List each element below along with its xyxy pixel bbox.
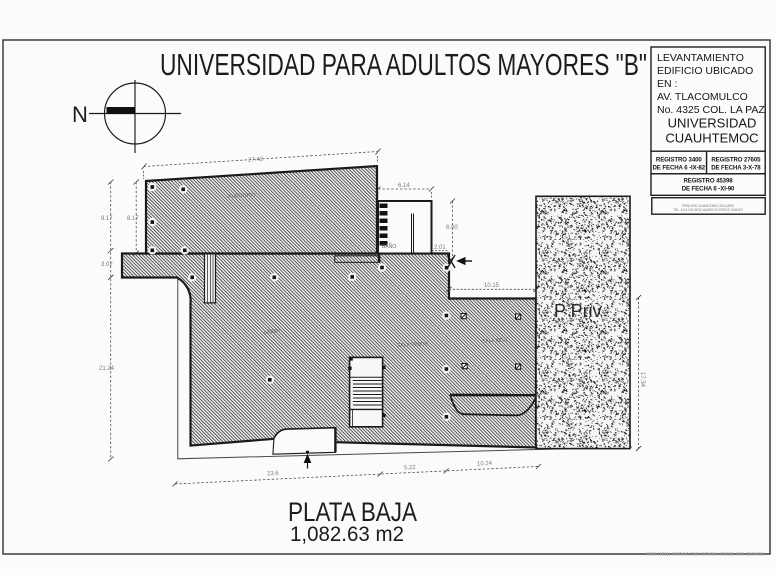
- svg-text:21.24: 21.24: [99, 366, 115, 372]
- svg-text:LOBBY: LOBBY: [264, 329, 282, 336]
- svg-text:8.17: 8.17: [127, 216, 139, 222]
- svg-text:TEL. 5-51-243 ARQ MAURICIO PE: TEL. 5-51-243 ARQ MAURICIO PEREZ JUAREZ: [673, 208, 743, 212]
- svg-text:CUAUHTEMOC: CUAUHTEMOC: [665, 131, 758, 146]
- svg-text:REGISTRO 3400: REGISTRO 3400: [656, 157, 702, 164]
- svg-text:23.6: 23.6: [267, 471, 280, 478]
- svg-text:DE FECHA 3-X-78: DE FECHA 3-X-78: [711, 165, 761, 172]
- svg-text:27.42: 27.42: [248, 157, 264, 164]
- svg-text:10.15: 10.15: [484, 283, 500, 289]
- svg-text:REGISTRO 45398: REGISTRO 45398: [683, 178, 733, 185]
- svg-text:P Priv: P Priv: [554, 301, 602, 321]
- svg-text:mm nmu mmnn mn nmmu mmn nm mmm: mm nmu mmnn mn nmmu mmn nm mmmn: [646, 552, 766, 558]
- svg-text:17.34: 17.34: [639, 372, 645, 388]
- svg-text:BAÑO: BAÑO: [382, 243, 396, 250]
- svg-text:EN :: EN :: [657, 78, 677, 90]
- svg-text:EDIFICIO UBICADO: EDIFICIO UBICADO: [657, 65, 753, 77]
- svg-text:REGISTRO 27605: REGISTRO 27605: [711, 157, 761, 164]
- svg-text:No. 4325 COL. LA PAZ: No. 4325 COL. LA PAZ: [657, 104, 765, 116]
- svg-text:10.24: 10.24: [477, 461, 493, 468]
- svg-text:UNIVERSIDAD PARA ADULTOS MAYOR: UNIVERSIDAD PARA ADULTOS MAYORES "B": [160, 47, 647, 82]
- svg-text:DE FECHA 6 -IX-82: DE FECHA 6 -IX-82: [653, 165, 706, 172]
- svg-text:8.17: 8.17: [101, 216, 113, 222]
- svg-text:LEVANTAMIENTO: LEVANTAMIENTO: [657, 52, 744, 64]
- svg-text:3.02: 3.02: [101, 262, 113, 268]
- svg-text:N: N: [72, 102, 88, 127]
- svg-text:6.00: 6.00: [446, 225, 458, 231]
- svg-text:1,082.63 m2: 1,082.63 m2: [290, 523, 404, 546]
- svg-text:5.22: 5.22: [404, 465, 417, 472]
- svg-text:2.01: 2.01: [434, 245, 446, 251]
- svg-text:DE FECHA 6 -XI-90: DE FECHA 6 -XI-90: [682, 186, 735, 193]
- svg-text:UNIVERSIDAD: UNIVERSIDAD: [668, 116, 757, 131]
- svg-text:AV. TLACOMULCO: AV. TLACOMULCO: [657, 91, 748, 103]
- svg-text:6.14: 6.14: [398, 183, 410, 189]
